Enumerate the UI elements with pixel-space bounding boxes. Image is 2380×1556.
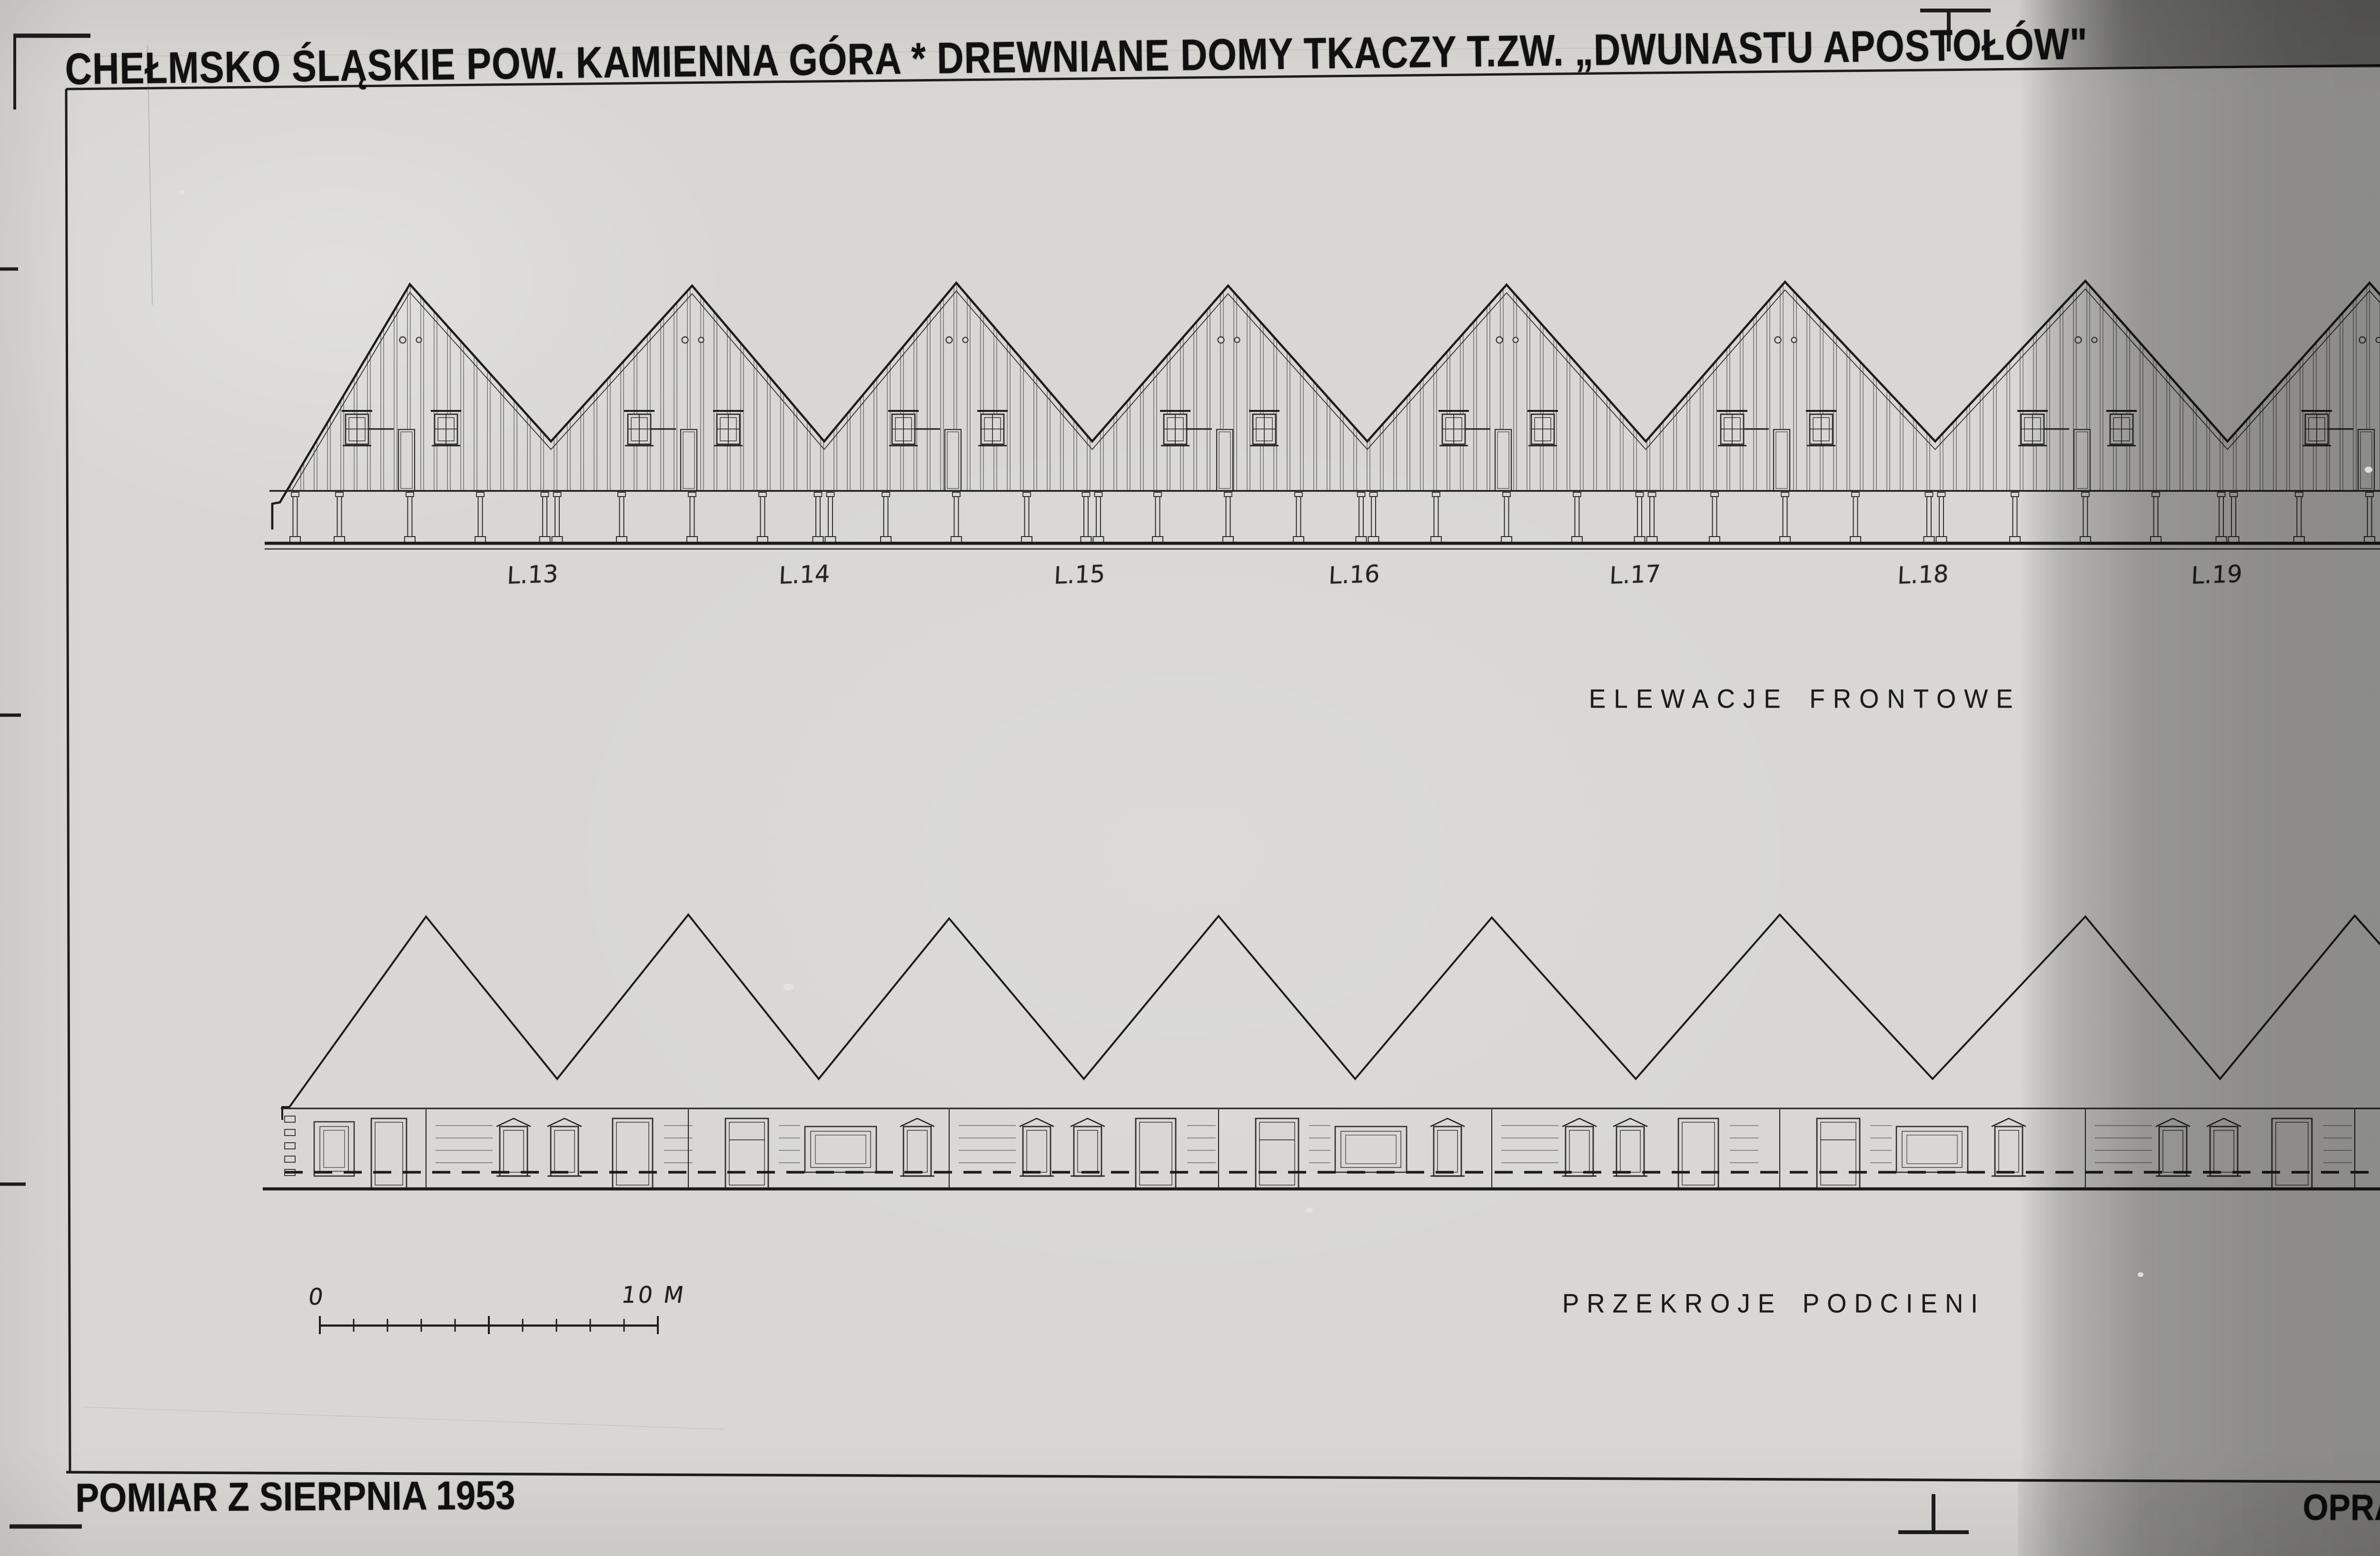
arcade-post bbox=[757, 492, 768, 543]
elevation-row bbox=[265, 267, 2380, 549]
section-bay bbox=[959, 1118, 1216, 1189]
house-label: L.19 bbox=[2169, 559, 2265, 590]
arcade-post bbox=[1431, 492, 1441, 543]
caption-arcade-sections: PRZEKROJE PODCIENI bbox=[1562, 1288, 1985, 1319]
arcade-post bbox=[1572, 492, 1582, 543]
arcade-post bbox=[1936, 492, 1947, 543]
section-bay bbox=[725, 1118, 934, 1189]
arcade-post bbox=[1850, 492, 1861, 543]
section-bay bbox=[1256, 1118, 1465, 1189]
sections-row bbox=[263, 915, 2380, 1189]
arcade-post bbox=[813, 492, 823, 543]
arcade-post bbox=[2364, 492, 2375, 543]
house-gable bbox=[2017, 337, 2137, 491]
section-bay bbox=[2095, 1118, 2352, 1189]
arcade-post bbox=[1021, 492, 1032, 543]
arcade-post bbox=[2010, 492, 2020, 543]
arcade-post bbox=[881, 492, 891, 543]
arcade-post bbox=[1647, 492, 1657, 543]
house-gable bbox=[888, 337, 1008, 491]
arcade-post bbox=[540, 492, 550, 543]
arcade-post bbox=[1368, 492, 1379, 543]
section-bay bbox=[285, 1116, 407, 1189]
arcade-post bbox=[687, 492, 697, 543]
arcade-post bbox=[552, 492, 563, 543]
arcade-post bbox=[616, 492, 627, 543]
caption-front-elevations: ELEWACJE FRONTOWE bbox=[1589, 684, 2021, 714]
section-bay bbox=[1817, 1118, 2026, 1189]
arcade-post bbox=[1093, 492, 1104, 543]
arcade-post bbox=[334, 492, 345, 543]
house-gable bbox=[624, 337, 744, 491]
house-label: L.15 bbox=[1031, 559, 1128, 590]
credit-caption: OPRACOWANIE ZAKŁADU ARCHITE bbox=[2303, 1486, 2380, 1531]
arcade-post bbox=[2216, 492, 2227, 543]
arcade-post bbox=[475, 492, 486, 543]
scale-bar-end-label: 10 M bbox=[620, 1282, 687, 1308]
architectural-linework bbox=[0, 0, 2380, 1556]
house-gable bbox=[1717, 337, 1836, 491]
house-gable bbox=[342, 337, 461, 491]
arcade-post bbox=[405, 492, 415, 543]
arcade-post bbox=[825, 492, 836, 543]
section-bay bbox=[436, 1118, 693, 1189]
house-label: L.18 bbox=[1875, 559, 1972, 590]
arcade-post bbox=[1924, 492, 1934, 543]
arcade-post bbox=[2294, 492, 2304, 543]
arcade-post bbox=[2080, 492, 2091, 543]
arcade-post bbox=[1501, 492, 1512, 543]
scale-bar bbox=[320, 1316, 658, 1334]
scanned-drawing-sheet: CHEŁMSKO ŚLĄSKIE POW. KAMIENNA GÓRA * DR… bbox=[0, 0, 2380, 1556]
arcade-post bbox=[2229, 492, 2239, 543]
house-label: L.16 bbox=[1306, 559, 1403, 590]
arcade-post bbox=[1081, 492, 1091, 543]
arcade-post bbox=[1293, 492, 1304, 543]
house-label: L.13 bbox=[485, 559, 581, 590]
house-gable bbox=[1160, 337, 1279, 491]
arcade-post bbox=[1223, 492, 1233, 543]
house-label: L.17 bbox=[1587, 559, 1684, 590]
arcade-post bbox=[1356, 492, 1367, 543]
arcade-post bbox=[290, 492, 300, 543]
paper-creases bbox=[83, 0, 2380, 1556]
survey-date-caption: POMIAR Z SIERPNIA 1953 bbox=[75, 1472, 516, 1522]
arcade-post bbox=[951, 492, 962, 543]
section-bay bbox=[1501, 1118, 1758, 1189]
house-label: L.14 bbox=[756, 559, 853, 590]
arcade-post bbox=[2151, 492, 2161, 543]
arcade-post bbox=[1635, 492, 1645, 543]
arcade-post bbox=[1780, 492, 1790, 543]
arcade-post bbox=[1152, 492, 1163, 543]
sheet-border bbox=[0, 10, 2380, 1532]
arcade-post bbox=[1709, 492, 1720, 543]
